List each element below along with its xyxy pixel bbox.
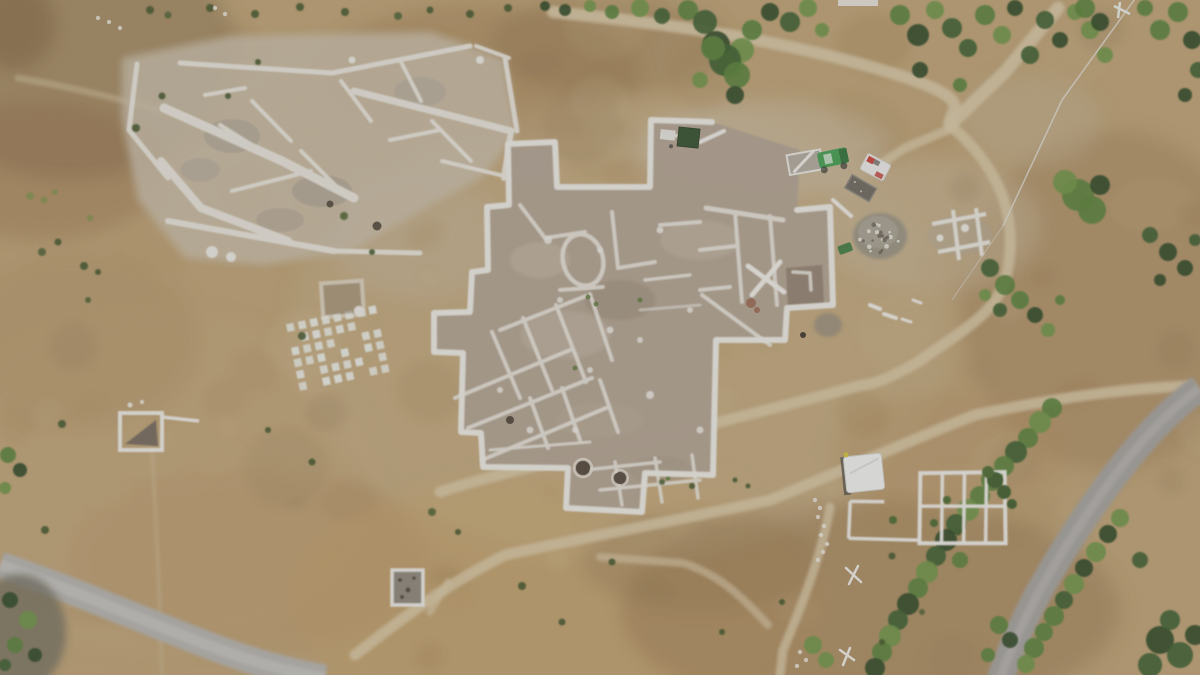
aerial-photo <box>0 0 1200 675</box>
aerial-photo-canvas <box>0 0 1200 675</box>
grain-light <box>0 0 1200 675</box>
